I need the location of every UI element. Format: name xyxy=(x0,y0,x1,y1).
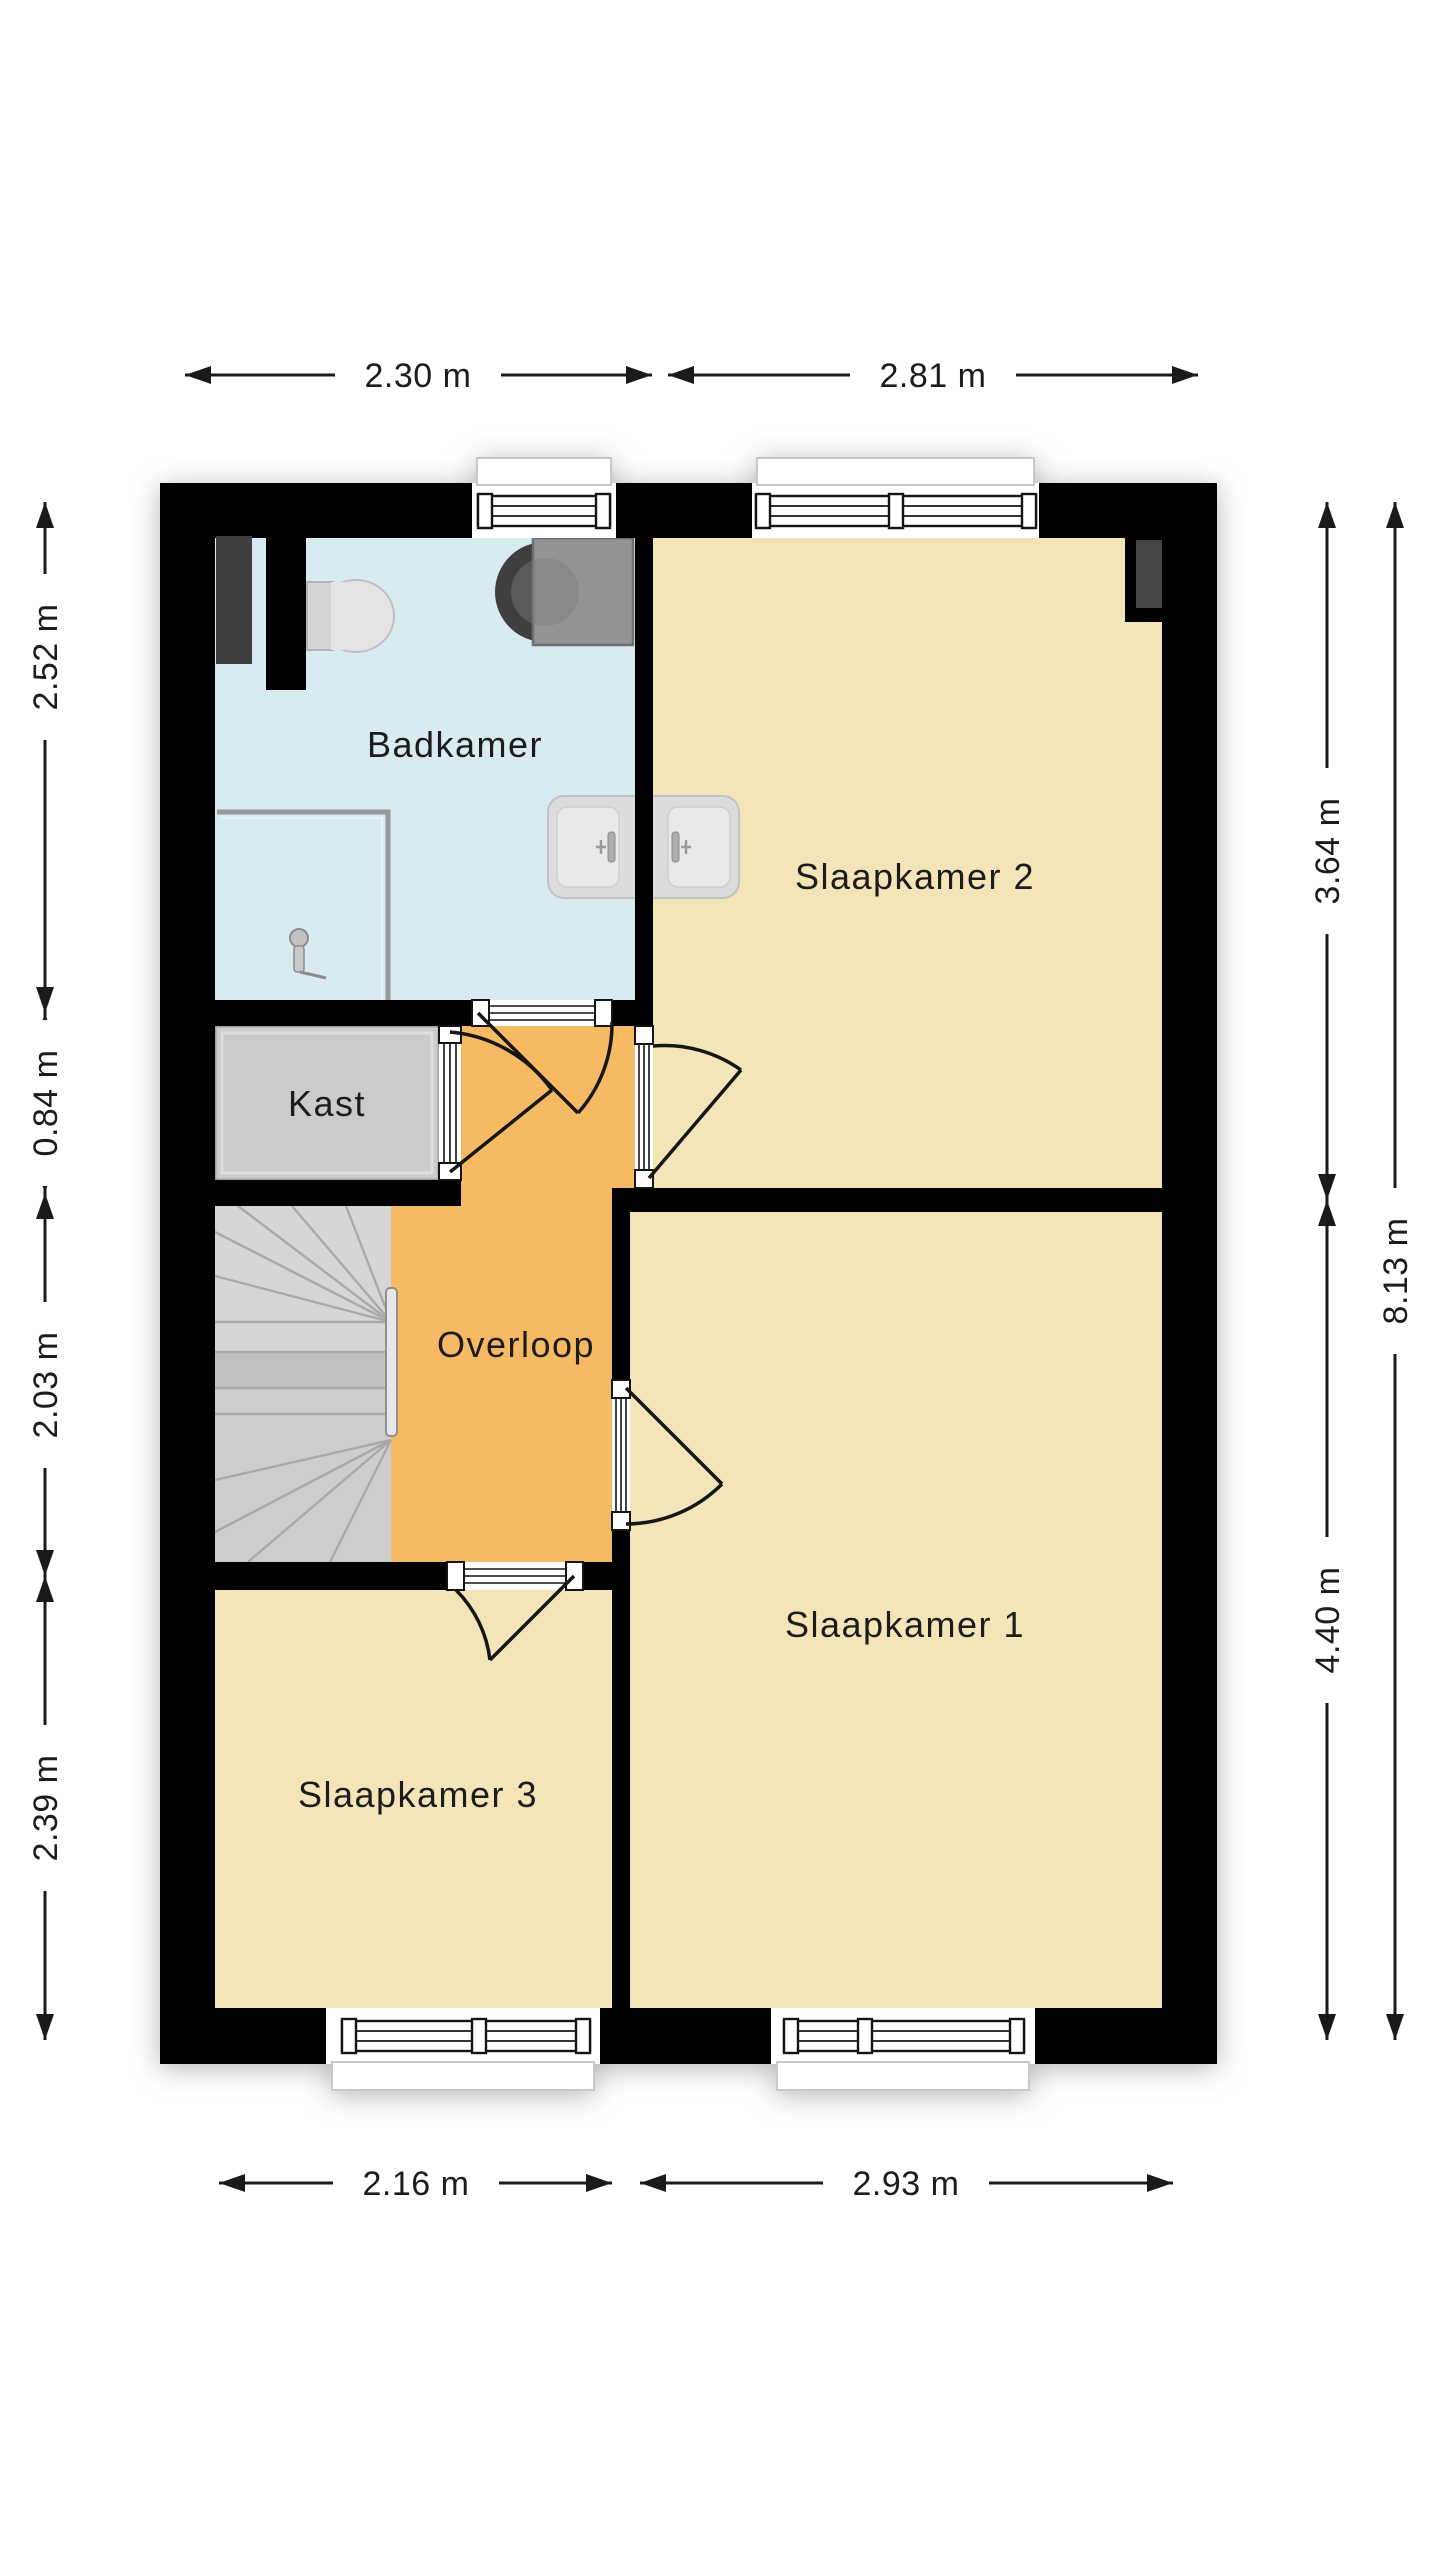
dim-label-3-64: 3.64 m xyxy=(1309,798,1347,905)
room-overloop-left xyxy=(391,1206,461,1562)
wall-badkamer-south-left xyxy=(215,1000,472,1026)
label-slaapkamer2: Slaapkamer 2 xyxy=(795,856,1035,897)
dim-left-239: 2.39 m xyxy=(20,1576,70,2040)
wall-slaapkamer3-slaapkamer1 xyxy=(612,1590,630,2008)
floorplan-canvas: Badkamer Slaapkamer 2 Kast Overloop Slaa… xyxy=(0,0,1440,2560)
dim-right-813: 8.13 m xyxy=(1370,502,1420,2040)
stair-handrail xyxy=(386,1288,397,1436)
label-kast: Kast xyxy=(288,1083,366,1124)
window-mullion xyxy=(472,2019,486,2053)
room-overloop-mid xyxy=(461,1188,612,1562)
stair-landing-band xyxy=(215,1352,391,1388)
wall-kast-south xyxy=(215,1180,461,1206)
dim-right-440: 4.40 m xyxy=(1302,1200,1352,2040)
dim-top-281: 2.81 m xyxy=(668,352,1198,398)
wall-stairs-south-right xyxy=(583,1562,630,1590)
label-slaapkamer1: Slaapkamer 1 xyxy=(785,1604,1025,1645)
dim-label-0-84: 0.84 m xyxy=(27,1050,65,1157)
dim-bottom-293: 2.93 m xyxy=(640,2160,1173,2206)
window-mullion xyxy=(889,494,903,528)
label-badkamer: Badkamer xyxy=(367,724,543,765)
dim-label-2-93: 2.93 m xyxy=(853,2165,960,2203)
wall-badkamer-south-right xyxy=(612,1000,653,1026)
wall-stairs-south-left xyxy=(215,1562,447,1590)
dim-label-8-13: 8.13 m xyxy=(1377,1218,1415,1325)
wall-overloop-east-upper xyxy=(612,1212,630,1380)
dim-label-2-16: 2.16 m xyxy=(363,2165,470,2203)
floorplan-page: Badkamer Slaapkamer 2 Kast Overloop Slaa… xyxy=(0,0,1440,2560)
washing-machine xyxy=(495,538,633,645)
dim-right-364: 3.64 m xyxy=(1302,502,1352,1200)
dim-label-2-52: 2.52 m xyxy=(27,604,65,711)
winder-staircase xyxy=(215,1206,397,1562)
window-bottom-slaapkamer1 xyxy=(771,2008,1035,2090)
window-top-badkamer xyxy=(472,458,616,538)
dim-left-252: 2.52 m xyxy=(20,502,70,1013)
window-mullion xyxy=(858,2019,872,2053)
wall-slaapkamer2-slaapkamer1 xyxy=(612,1188,1162,1212)
label-slaapkamer3: Slaapkamer 3 xyxy=(298,1774,538,1815)
floor-plan: Badkamer Slaapkamer 2 Kast Overloop Slaa… xyxy=(160,458,1217,2090)
dim-label-2-81: 2.81 m xyxy=(880,357,987,395)
label-overloop: Overloop xyxy=(437,1324,595,1365)
toilet xyxy=(307,580,394,652)
window-top-slaapkamer2 xyxy=(752,458,1039,538)
dim-bottom-216: 2.16 m xyxy=(219,2160,612,2206)
wall-stub-badkamer xyxy=(266,538,306,690)
radiator-duct-left xyxy=(216,536,252,664)
dim-label-4-40: 4.40 m xyxy=(1309,1567,1347,1674)
dim-left-084: 0.84 m xyxy=(20,1013,70,1193)
dim-left-203: 2.03 m xyxy=(20,1193,70,1576)
wall-badkamer-slaapkamer2 xyxy=(635,538,653,1000)
window-bottom-slaapkamer3 xyxy=(326,2008,600,2090)
radiator-duct-right xyxy=(1136,540,1162,608)
dim-label-2-03: 2.03 m xyxy=(27,1332,65,1439)
dim-label-2-30: 2.30 m xyxy=(365,357,472,395)
dim-top-230: 2.30 m xyxy=(185,352,652,398)
dim-label-2-39: 2.39 m xyxy=(27,1755,65,1862)
